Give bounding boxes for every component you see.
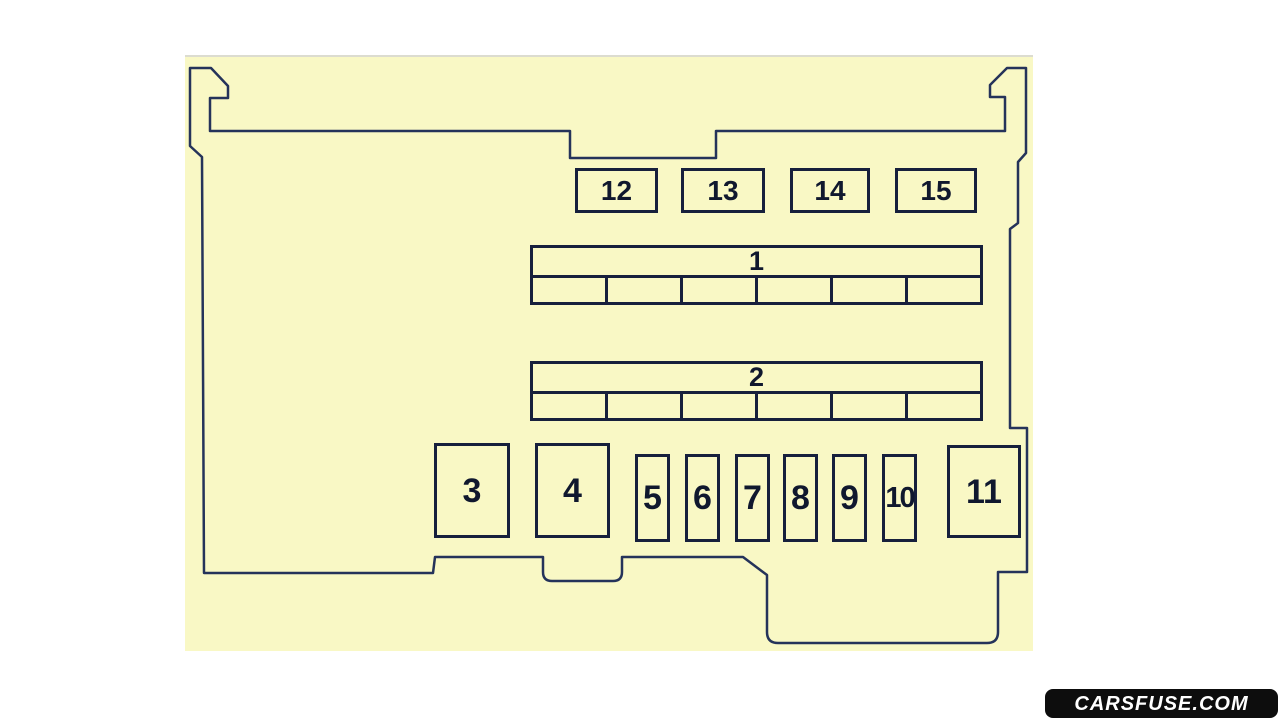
relay-cell bbox=[605, 394, 680, 418]
relay-cell bbox=[905, 278, 980, 302]
relay-block-1: 1 bbox=[530, 245, 983, 305]
fuse-box-7: 7 bbox=[735, 454, 770, 542]
fuse-box-12: 12 bbox=[575, 168, 658, 213]
relay-cell bbox=[905, 394, 980, 418]
relay-block-2-cells bbox=[533, 394, 980, 418]
watermark-badge: CARSFUSE.COM bbox=[1045, 689, 1278, 718]
diagram-canvas bbox=[185, 55, 1033, 651]
relay-block-2-label: 2 bbox=[533, 364, 980, 394]
relay-block-1-label: 1 bbox=[533, 248, 980, 278]
fuse-diagram-page: 12 13 14 15 1 2 3 4 5 6 7 8 9 10 11 bbox=[0, 0, 1280, 720]
relay-block-2: 2 bbox=[530, 361, 983, 421]
relay-cell bbox=[830, 394, 905, 418]
fuse-box-13: 13 bbox=[681, 168, 765, 213]
fuse-box-6: 6 bbox=[685, 454, 720, 542]
relay-cell bbox=[755, 394, 830, 418]
relay-cell bbox=[533, 394, 605, 418]
fuse-box-8: 8 bbox=[783, 454, 818, 542]
relay-cell bbox=[680, 394, 755, 418]
fuse-box-14: 14 bbox=[790, 168, 870, 213]
relay-cell bbox=[680, 278, 755, 302]
relay-block-1-cells bbox=[533, 278, 980, 302]
fuse-box-15: 15 bbox=[895, 168, 977, 213]
watermark-text: CARSFUSE.COM bbox=[1074, 694, 1248, 714]
relay-cell bbox=[605, 278, 680, 302]
relay-cell bbox=[755, 278, 830, 302]
relay-cell bbox=[533, 278, 605, 302]
fuse-box-9: 9 bbox=[832, 454, 867, 542]
relay-cell bbox=[830, 278, 905, 302]
fuse-box-3: 3 bbox=[434, 443, 510, 538]
fuse-box-10: 10 bbox=[882, 454, 917, 542]
fuse-box-5: 5 bbox=[635, 454, 670, 542]
fuse-box-4: 4 bbox=[535, 443, 610, 538]
fuse-box-11: 11 bbox=[947, 445, 1021, 538]
